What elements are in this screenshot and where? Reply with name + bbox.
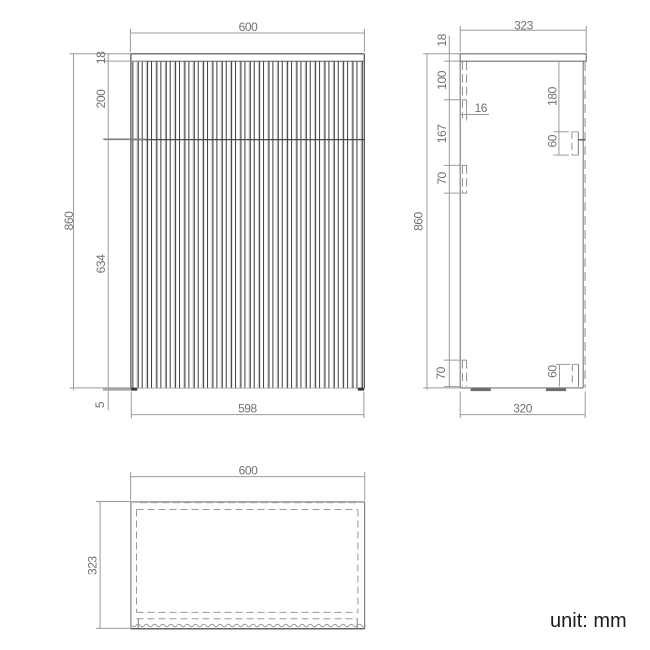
svg-text:60: 60 — [546, 365, 560, 378]
svg-text:100: 100 — [435, 70, 449, 89]
svg-text:600: 600 — [239, 463, 258, 477]
svg-text:323: 323 — [514, 19, 533, 33]
svg-text:18: 18 — [435, 33, 449, 46]
svg-text:860: 860 — [62, 211, 76, 230]
svg-text:200: 200 — [94, 89, 108, 108]
svg-text:70: 70 — [435, 172, 449, 185]
svg-text:unit: mm: unit: mm — [550, 610, 627, 632]
svg-text:320: 320 — [513, 401, 532, 415]
svg-text:600: 600 — [239, 20, 258, 34]
svg-text:323: 323 — [85, 556, 99, 575]
svg-text:5: 5 — [93, 401, 107, 408]
svg-text:634: 634 — [94, 254, 108, 273]
svg-text:60: 60 — [546, 134, 560, 147]
svg-text:598: 598 — [238, 401, 257, 415]
svg-text:180: 180 — [546, 86, 560, 105]
svg-text:16: 16 — [475, 101, 488, 115]
svg-text:860: 860 — [412, 211, 426, 230]
svg-text:167: 167 — [435, 124, 449, 143]
svg-text:70: 70 — [434, 366, 448, 379]
svg-text:18: 18 — [94, 51, 108, 64]
